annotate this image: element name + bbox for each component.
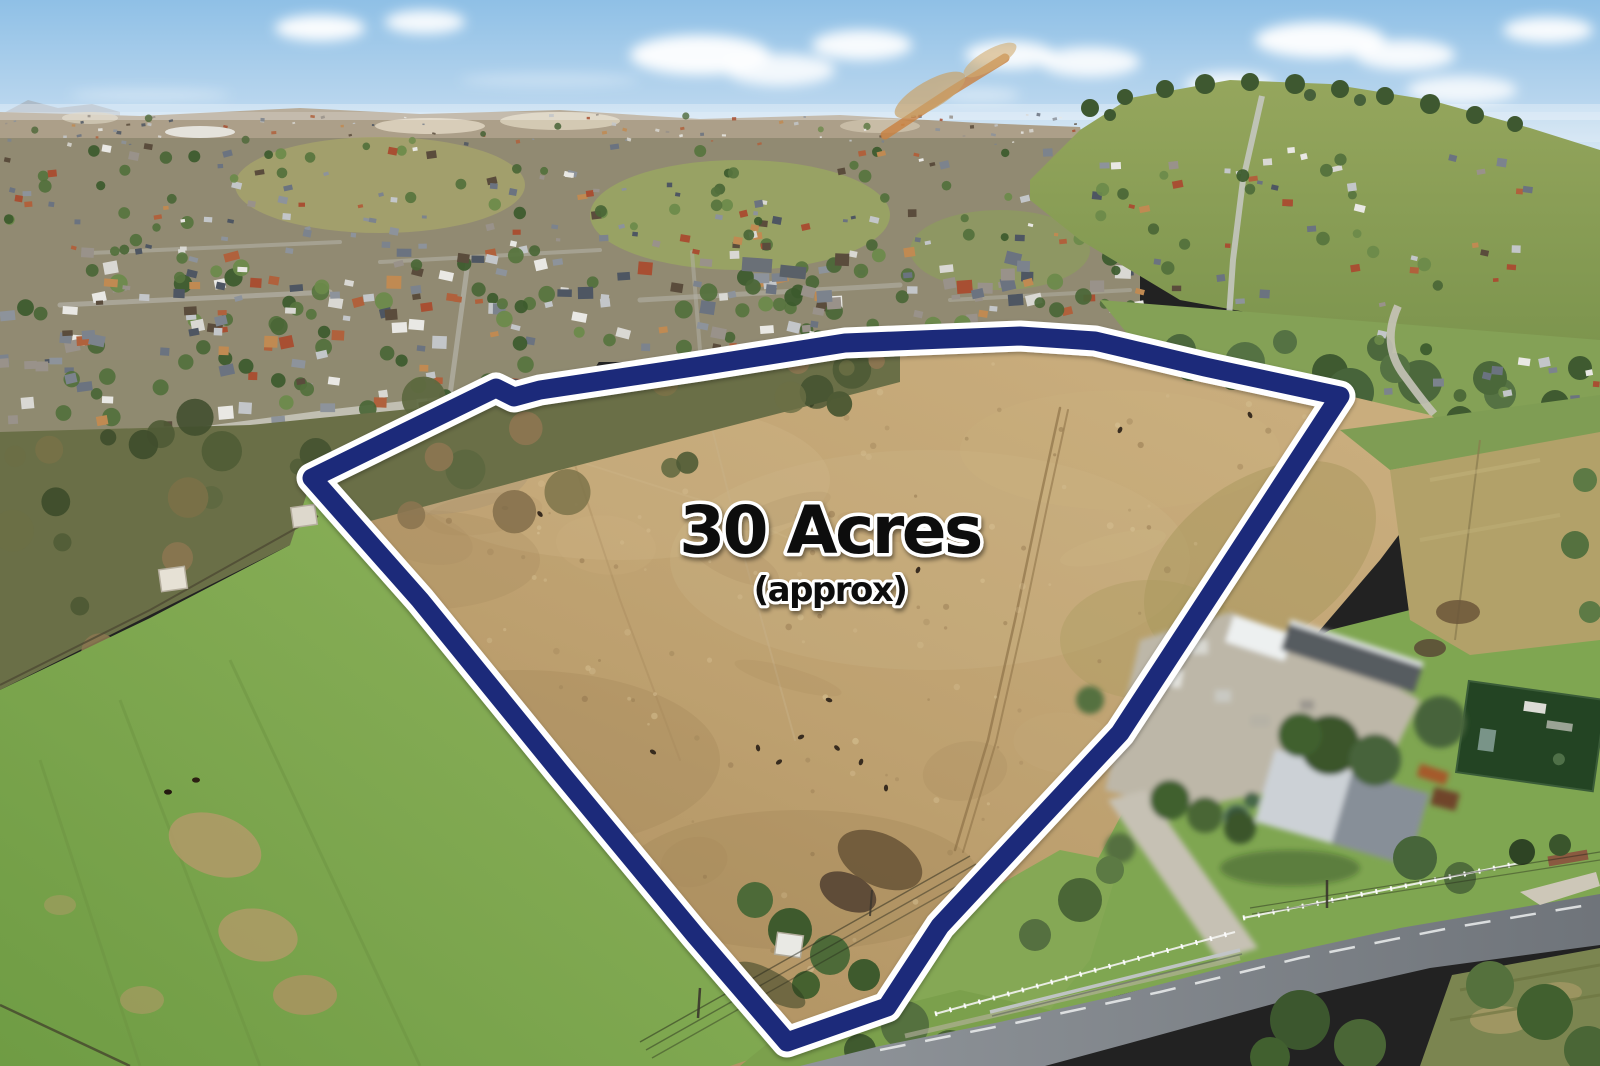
aerial-photo: 30 Acres (approx) xyxy=(0,0,1600,1066)
field-shed xyxy=(291,504,318,527)
school-roof xyxy=(742,257,773,273)
hedge-yard xyxy=(1456,681,1600,791)
area-sublabel: (approx) xyxy=(754,570,907,610)
area-label: 30 Acres xyxy=(679,492,981,569)
field-shed xyxy=(159,566,188,591)
small-shed-in-tip xyxy=(775,932,804,957)
screenshot-stage: 30 Acres (approx) xyxy=(0,0,1600,1066)
